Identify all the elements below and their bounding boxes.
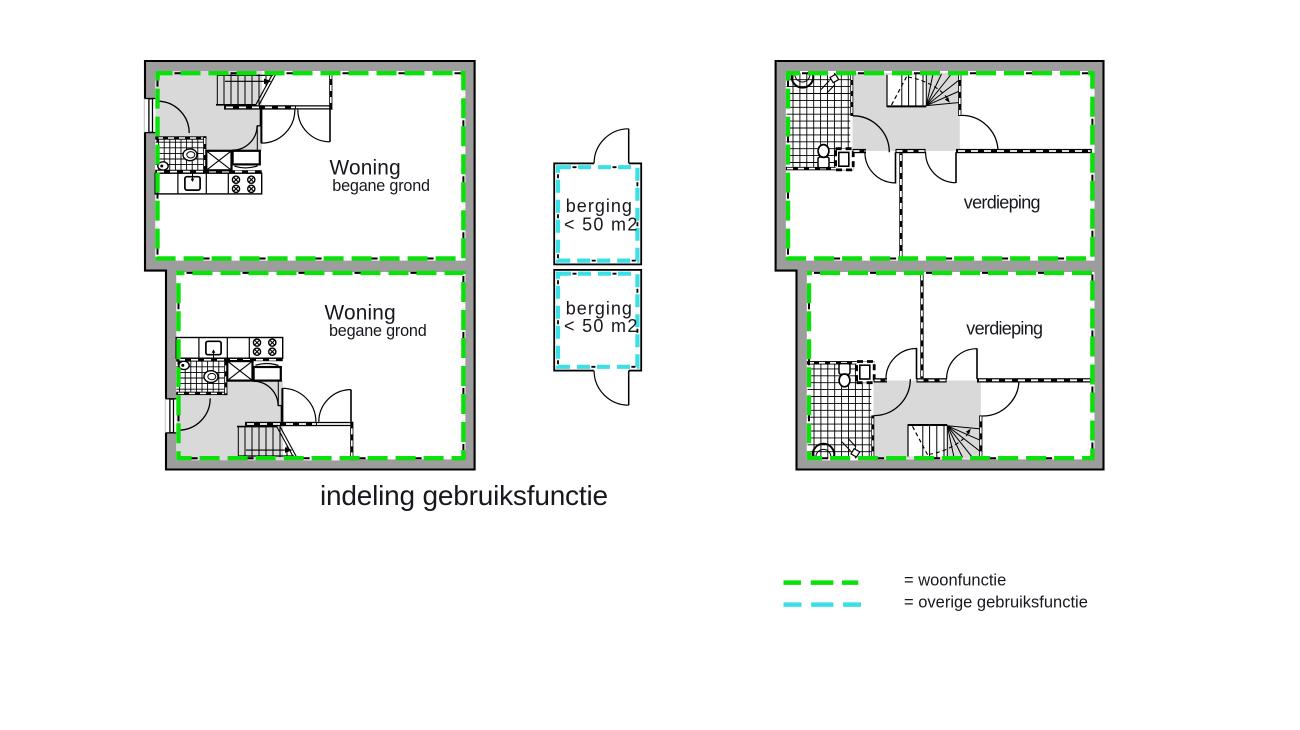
svg-text:= woonfunctie: = woonfunctie xyxy=(904,572,1006,590)
svg-text:indeling gebruiksfunctie: indeling gebruiksfunctie xyxy=(320,480,608,511)
svg-text:< 50 m2: < 50 m2 xyxy=(564,214,639,234)
svg-text:Woning: Woning xyxy=(330,156,401,179)
svg-text:begane grond: begane grond xyxy=(332,177,430,195)
svg-text:= overige gebruiksfunctie: = overige gebruiksfunctie xyxy=(904,594,1088,612)
svg-text:< 50 m2: < 50 m2 xyxy=(564,316,639,336)
svg-text:berging: berging xyxy=(566,196,633,216)
svg-text:begane grond: begane grond xyxy=(329,322,427,340)
svg-text:verdieping: verdieping xyxy=(966,319,1042,339)
svg-text:verdieping: verdieping xyxy=(964,193,1040,213)
